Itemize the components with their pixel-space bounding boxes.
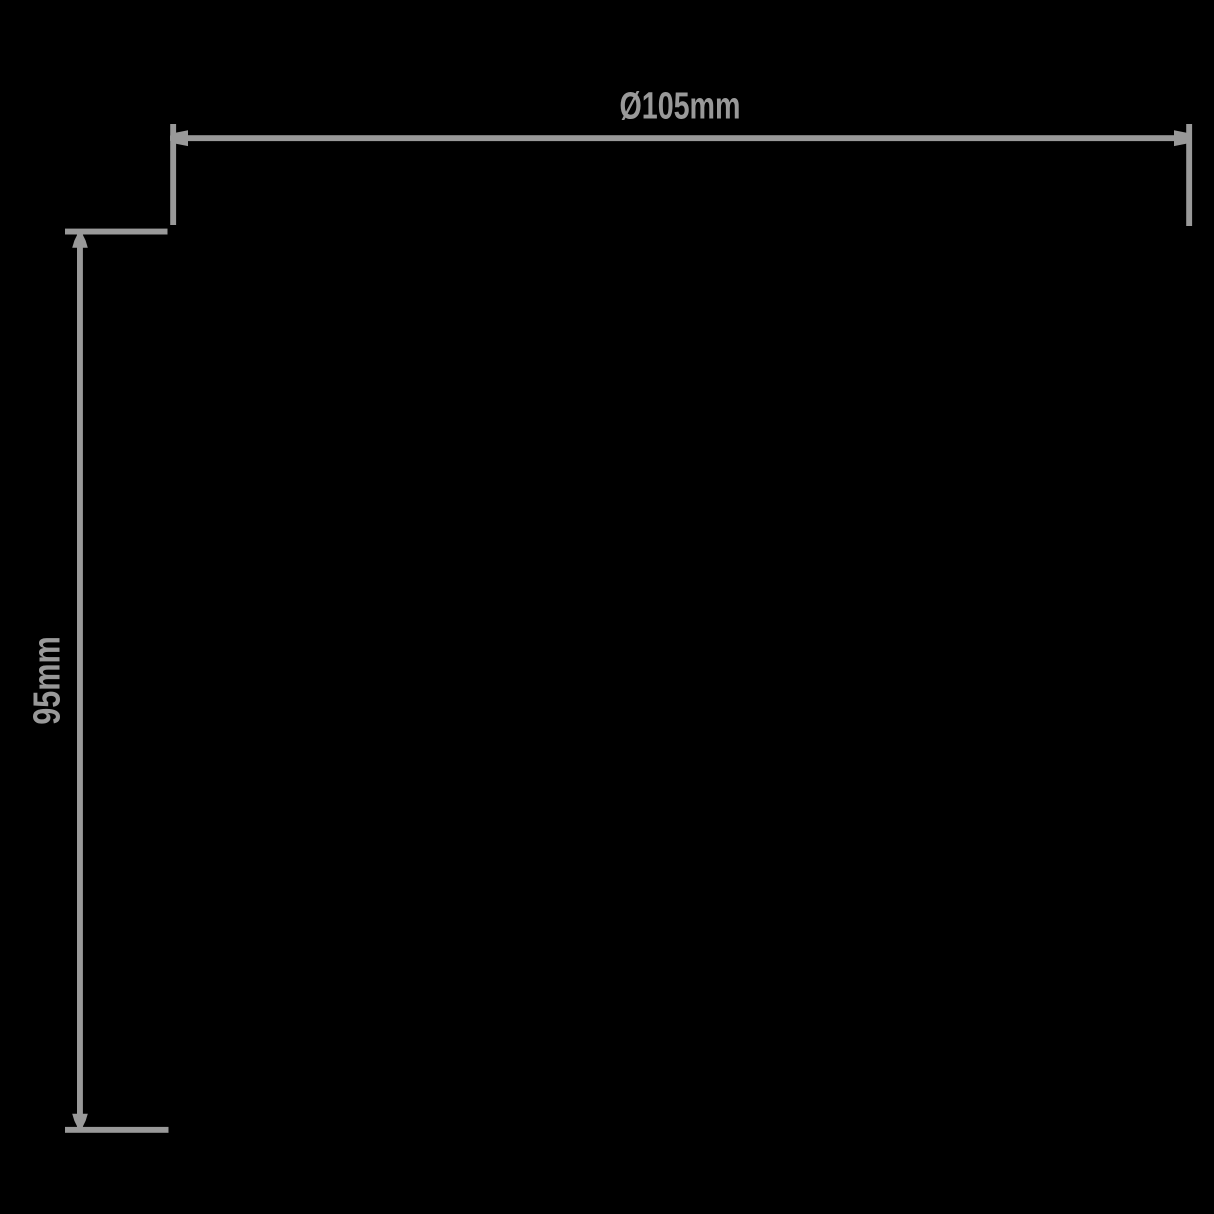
svg-text:95mm: 95mm — [27, 636, 69, 725]
svg-text:Ø105mm: Ø105mm — [620, 86, 741, 128]
